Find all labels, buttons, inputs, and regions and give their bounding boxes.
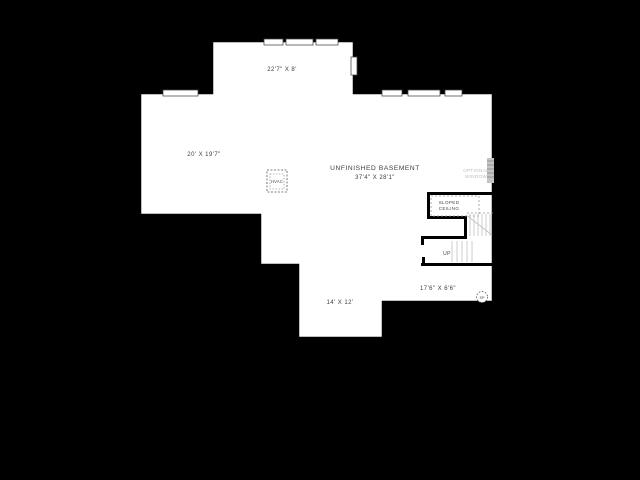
window-icon bbox=[316, 39, 338, 45]
optional-window-label-line1: OPTIONAL bbox=[463, 168, 489, 173]
window-icon bbox=[408, 90, 440, 96]
sloped-ceiling-label-line2: CEILING bbox=[439, 206, 460, 211]
hvac-label: HVAC bbox=[271, 179, 283, 184]
sloped-ceiling-label-line1: SLOPED bbox=[439, 200, 460, 205]
basement-outline bbox=[140, 41, 493, 338]
bottom-right-room-dimension-label: 17'6" X 6'6" bbox=[420, 286, 456, 292]
window-icon bbox=[351, 57, 357, 75]
window-icon bbox=[163, 90, 198, 96]
top-room-dimension-label: 22'7" X 8' bbox=[267, 67, 297, 73]
sump-pump-label: SP bbox=[479, 296, 485, 300]
bottom-room-dimension-label: 14' X 12' bbox=[326, 300, 353, 306]
floor-plan-canvas: 22'7" X 8' 20' X 19'7" UNFINISHED BASEME… bbox=[0, 0, 640, 480]
floor-plan: 22'7" X 8' 20' X 19'7" UNFINISHED BASEME… bbox=[0, 0, 640, 480]
optional-window-label-line2: WINDOW bbox=[465, 174, 487, 179]
basement-dimension-label: 37'4" X 28'1" bbox=[355, 175, 395, 181]
window-icon bbox=[264, 39, 283, 45]
basement-title: UNFINISHED BASEMENT bbox=[330, 165, 420, 172]
stairs-up-label: UP bbox=[443, 251, 451, 257]
window-icon bbox=[445, 90, 462, 96]
left-room-dimension-label: 20' X 19'7" bbox=[187, 152, 220, 158]
window-icon bbox=[382, 90, 402, 96]
window-icon bbox=[286, 39, 313, 45]
